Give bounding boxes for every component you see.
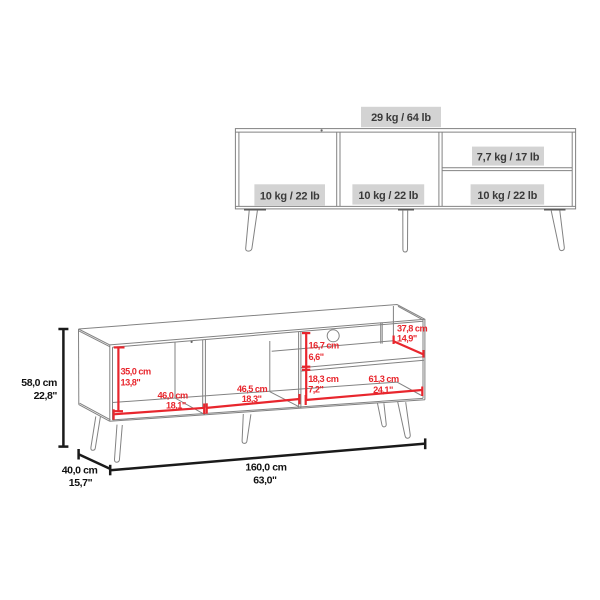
svg-text:7,2": 7,2" xyxy=(308,384,323,394)
svg-text:46,5 cm: 46,5 cm xyxy=(237,384,268,394)
svg-text:6,6": 6,6" xyxy=(309,352,324,362)
svg-text:14,9": 14,9" xyxy=(397,334,417,344)
svg-text:37,8 cm: 37,8 cm xyxy=(397,324,428,334)
svg-text:35,0 cm: 35,0 cm xyxy=(121,366,152,376)
svg-text:7,7 kg / 17 lb: 7,7 kg / 17 lb xyxy=(477,152,540,164)
svg-text:18,1": 18,1" xyxy=(166,401,186,411)
svg-text:18,3": 18,3" xyxy=(242,394,262,404)
svg-text:160,0 cm: 160,0 cm xyxy=(245,461,286,473)
svg-text:61,3 cm: 61,3 cm xyxy=(369,374,400,384)
svg-text:18,3 cm: 18,3 cm xyxy=(308,374,339,384)
svg-text:46,0 cm: 46,0 cm xyxy=(158,390,189,400)
svg-text:40,0 cm: 40,0 cm xyxy=(62,465,98,477)
svg-text:58,0 cm: 58,0 cm xyxy=(21,377,57,389)
svg-text:15,7": 15,7" xyxy=(69,477,93,489)
svg-text:10 kg / 22 lb: 10 kg / 22 lb xyxy=(477,190,537,202)
svg-text:63,0": 63,0" xyxy=(253,475,277,487)
svg-text:29 kg / 64 lb: 29 kg / 64 lb xyxy=(371,112,431,124)
svg-text:10 kg / 22 lb: 10 kg / 22 lb xyxy=(260,190,320,202)
svg-text:16,7 cm: 16,7 cm xyxy=(309,341,340,351)
svg-text:13,8": 13,8" xyxy=(121,378,141,388)
svg-text:22,8": 22,8" xyxy=(34,390,58,402)
svg-text:10 kg / 22 lb: 10 kg / 22 lb xyxy=(358,190,418,202)
svg-text:24,1": 24,1" xyxy=(373,385,393,395)
